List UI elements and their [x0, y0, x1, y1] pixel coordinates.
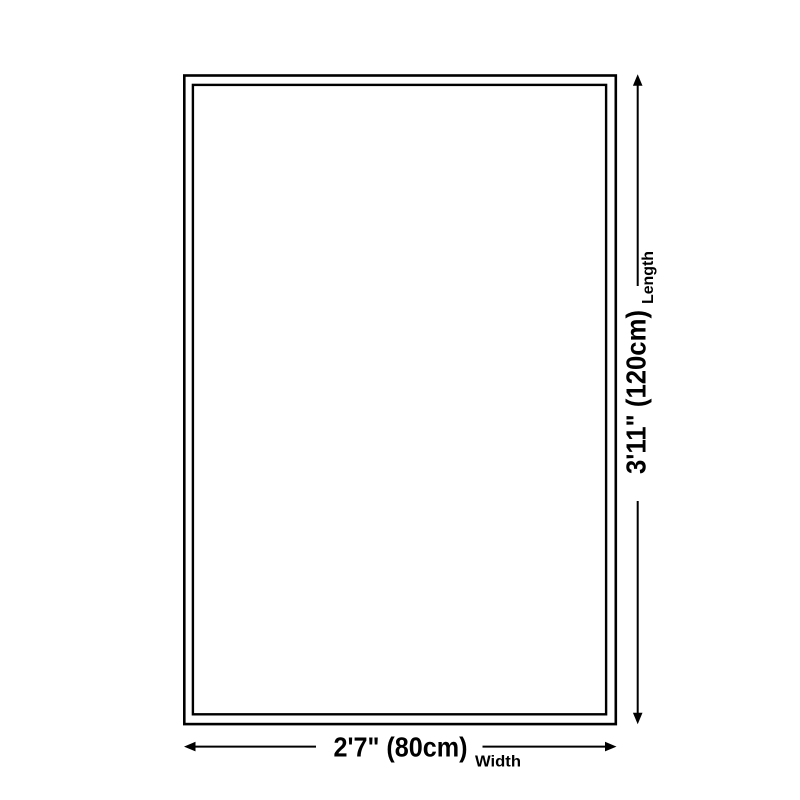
svg-text:Width: Width: [475, 754, 521, 771]
svg-text:3'11" (120cm): 3'11" (120cm): [621, 310, 652, 474]
svg-text:Length: Length: [640, 251, 657, 304]
svg-text:2'7" (80cm): 2'7" (80cm): [334, 732, 468, 763]
